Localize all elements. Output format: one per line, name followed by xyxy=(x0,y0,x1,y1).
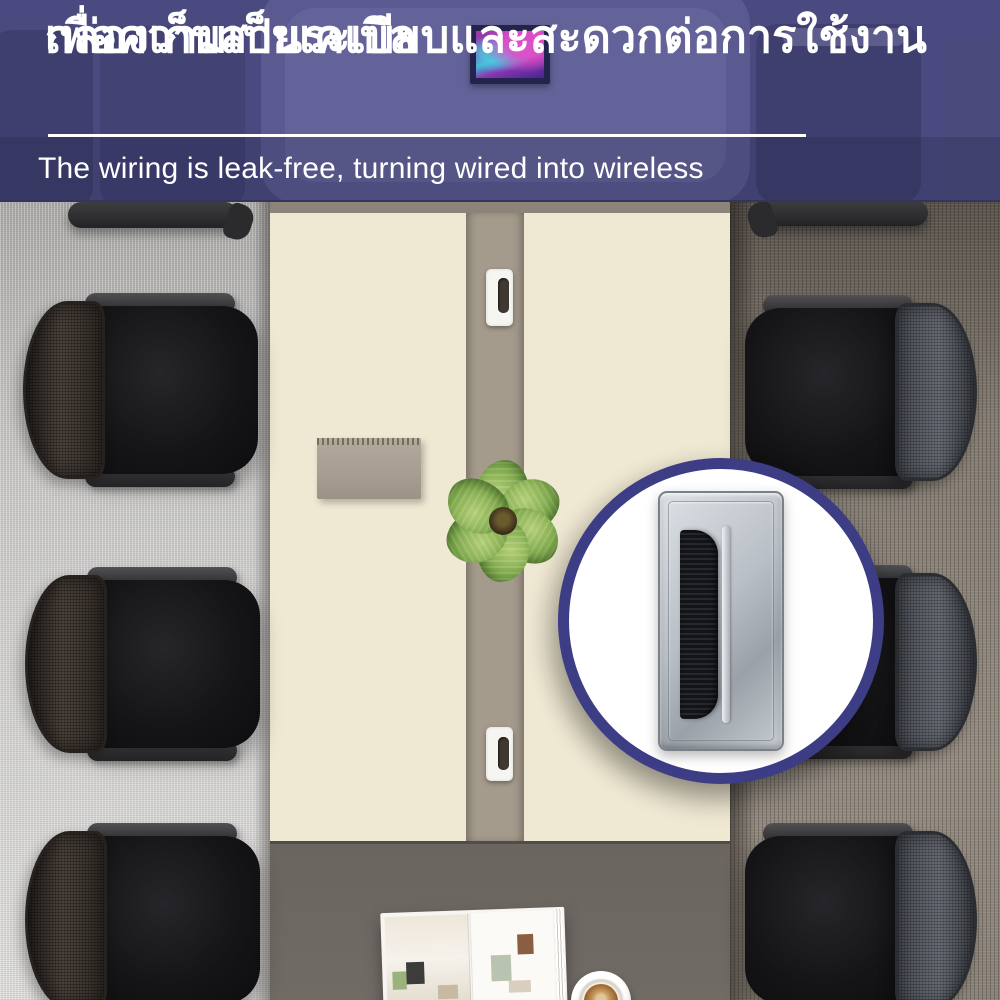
latte-coffee xyxy=(584,984,618,1000)
office-chair-armrest-top-right xyxy=(763,200,928,226)
grommet-slot xyxy=(498,737,509,770)
plant-core xyxy=(489,507,517,535)
magazine-right-page xyxy=(470,910,555,1000)
coffee-cup xyxy=(579,979,623,1000)
potted-plant xyxy=(444,462,562,580)
chair-seat xyxy=(745,308,920,476)
office-chair-armrest-top-left xyxy=(68,202,238,228)
chair-seat xyxy=(83,306,258,474)
divider-line xyxy=(48,134,806,137)
chair-seat xyxy=(85,836,260,1000)
product-banner-image: กล่องเก็บสายเคเบิล เพื่อความเป็นระเบียบแ… xyxy=(0,0,1000,1000)
chair-mesh-back xyxy=(895,831,977,1000)
spiral-notebook xyxy=(317,438,421,499)
magazine-page-edges xyxy=(554,909,565,1000)
open-magazine xyxy=(380,907,568,1000)
office-chair-right-1 xyxy=(745,295,977,489)
table-far-edge xyxy=(270,202,730,213)
zoom-callout-circle xyxy=(558,458,884,784)
office-chair-left-3 xyxy=(25,823,260,1000)
chair-seat xyxy=(85,580,260,748)
product-brush-strip xyxy=(680,530,718,719)
chair-mesh-back xyxy=(895,573,977,751)
table-cable-grommet-bottom xyxy=(486,727,513,781)
cable-grommet-product xyxy=(658,491,784,751)
magazine-left-page xyxy=(384,914,471,1000)
grommet-slot xyxy=(498,278,509,313)
chair-mesh-back xyxy=(25,575,107,753)
header-banner: กล่องเก็บสายเคเบิล เพื่อความเป็นระเบียบแ… xyxy=(0,0,1000,202)
chair-seat xyxy=(745,836,920,1000)
chair-mesh-back xyxy=(23,301,105,479)
banner-subtitle: The wiring is leak-free, turning wired i… xyxy=(38,148,978,190)
office-chair-right-3 xyxy=(745,823,977,1000)
product-flap-highlight xyxy=(722,526,730,723)
office-chair-left-2 xyxy=(25,567,260,761)
office-chair-left-1 xyxy=(23,293,258,487)
table-left-panel xyxy=(270,213,466,841)
spiral-binding xyxy=(317,438,421,445)
table-cable-grommet-top xyxy=(486,269,513,326)
chair-mesh-back xyxy=(895,303,977,481)
chair-mesh-back xyxy=(25,831,107,1000)
banner-title-line2: เพื่อความเป็นระเบียบและสะดวกต่อการใช้งาน xyxy=(45,8,927,66)
